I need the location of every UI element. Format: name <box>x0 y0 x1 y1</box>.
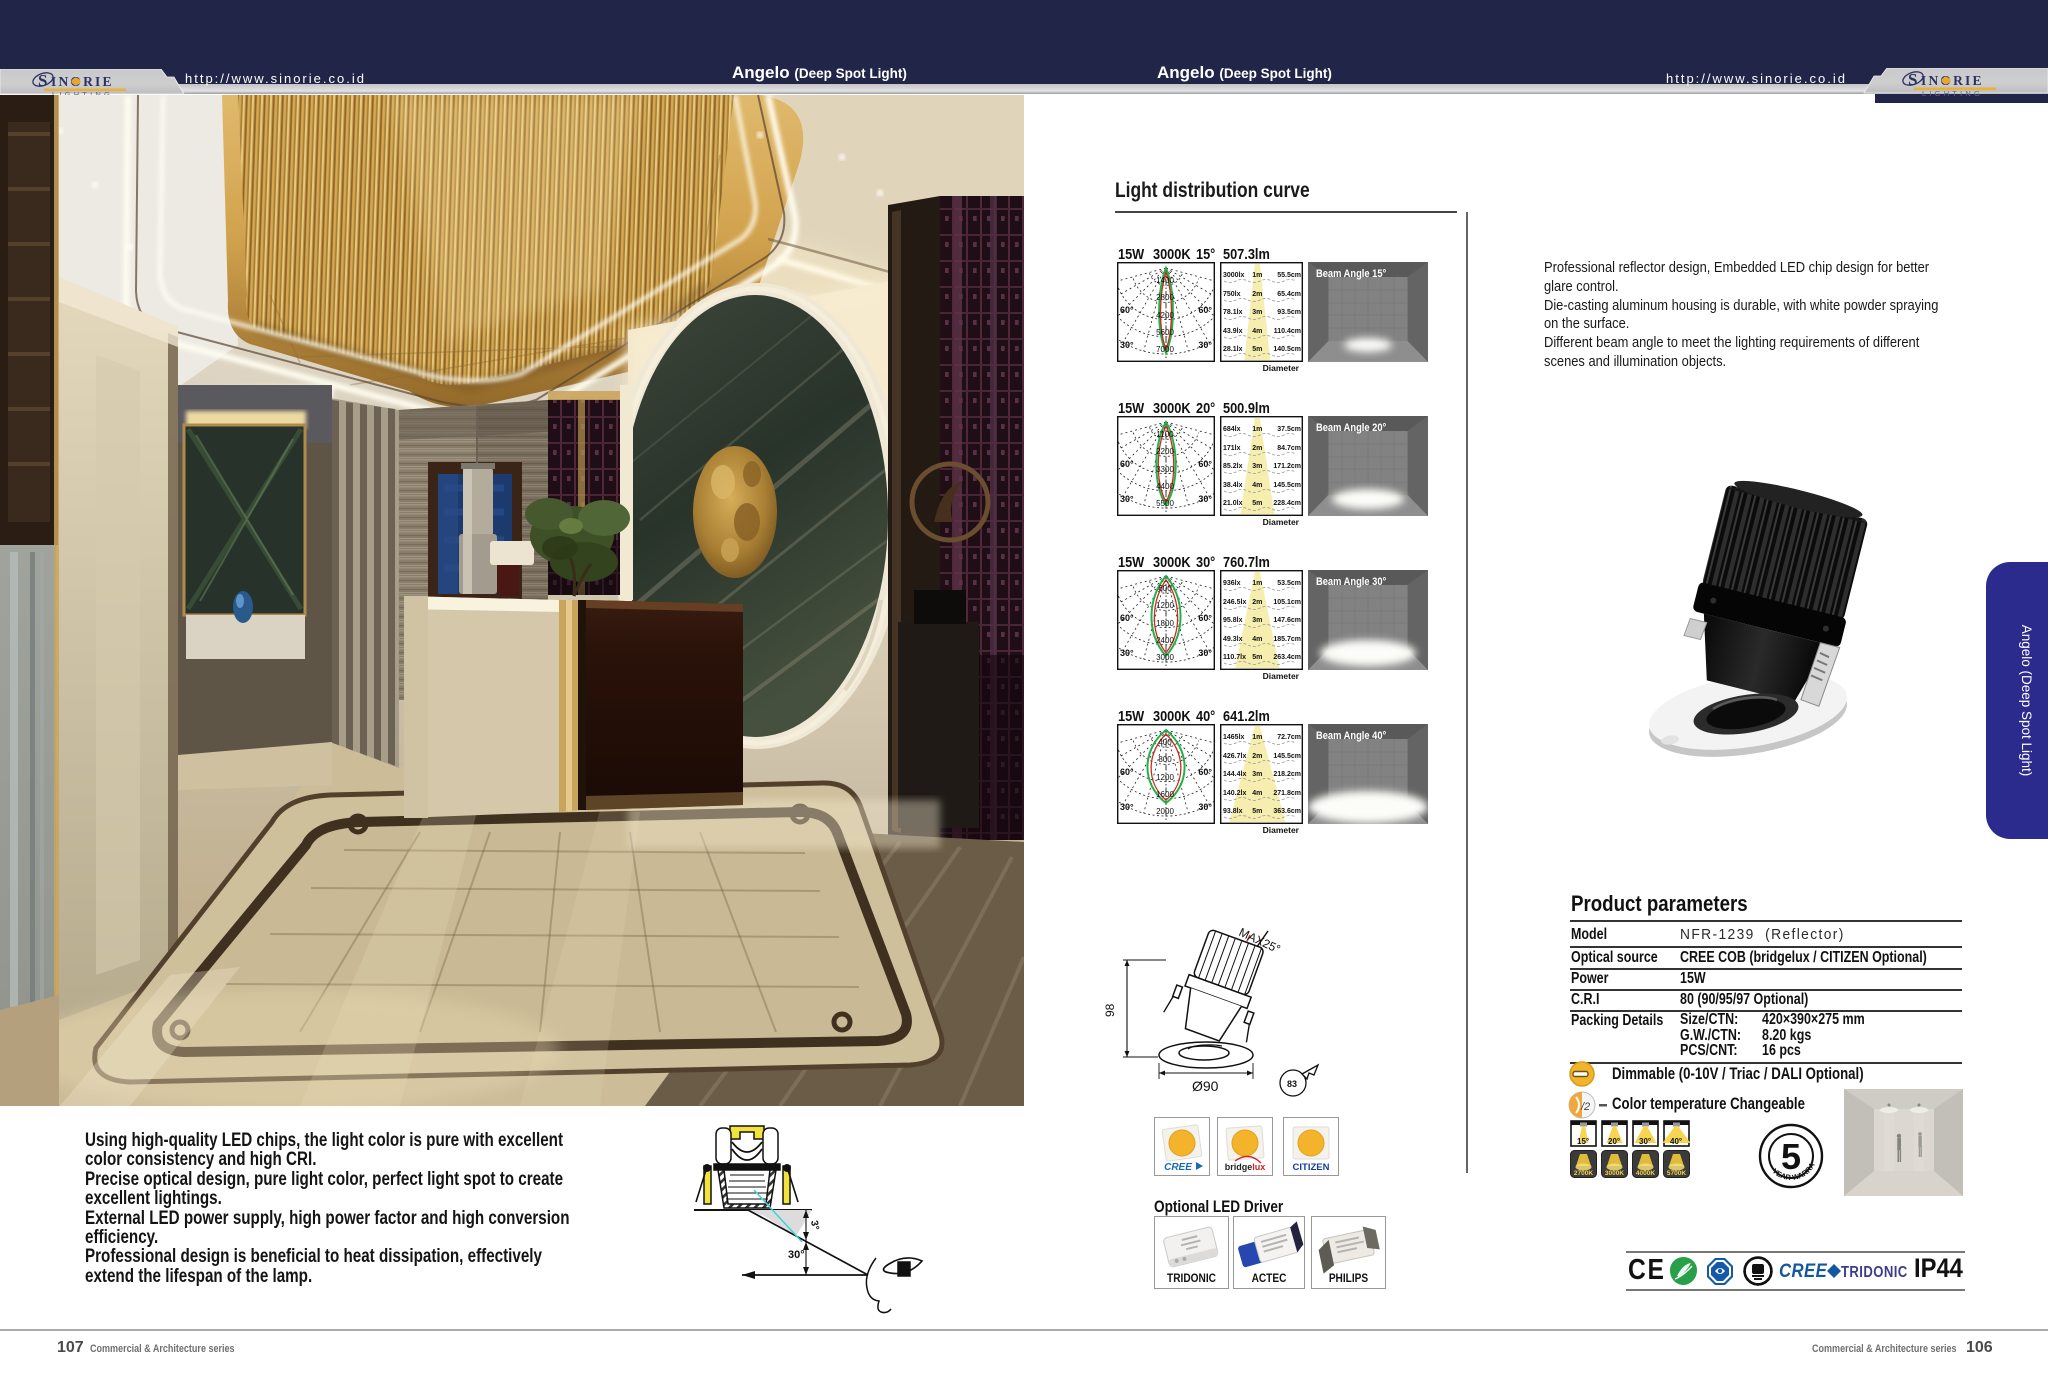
svg-text:30°: 30° <box>1120 802 1134 812</box>
svg-text:CITIZEN: CITIZEN <box>1293 1162 1330 1173</box>
svg-text:15°: 15° <box>1577 1137 1589 1146</box>
svg-text:3000K: 3000K <box>1605 1170 1624 1177</box>
svg-text:4400: 4400 <box>1156 482 1174 491</box>
svg-text:1m: 1m <box>1252 734 1262 741</box>
svg-text:bridgelux: bridgelux <box>1225 1162 1266 1172</box>
svg-text:30°: 30° <box>1120 340 1134 350</box>
svg-text:4m: 4m <box>1252 328 1262 335</box>
svg-text:4m: 4m <box>1252 482 1262 489</box>
svg-text:55.5cm: 55.5cm <box>1277 272 1301 279</box>
svg-text:ACTEC: ACTEC <box>1252 1272 1287 1285</box>
svg-text:145.5cm: 145.5cm <box>1273 753 1301 760</box>
svg-text:38.4lx: 38.4lx <box>1223 482 1243 489</box>
svg-text:30°: 30° <box>1120 648 1134 658</box>
svg-text:2m: 2m <box>1252 599 1262 606</box>
svg-text:140.5cm: 140.5cm <box>1273 346 1301 353</box>
svg-text:78.1lx: 78.1lx <box>1223 309 1243 316</box>
svg-text:2700K: 2700K <box>1574 1170 1593 1177</box>
svg-text:60°: 60° <box>1120 613 1134 623</box>
svg-text:5: 5 <box>1781 1136 1801 1177</box>
svg-text:60°: 60° <box>1198 767 1212 777</box>
svg-text:426.7lx: 426.7lx <box>1223 753 1246 760</box>
svg-text:30°: 30° <box>1120 494 1134 504</box>
svg-text:1m: 1m <box>1252 580 1262 587</box>
svg-text:684lx: 684lx <box>1223 426 1241 433</box>
svg-text:1m: 1m <box>1252 426 1262 433</box>
svg-text:65.4cm: 65.4cm <box>1277 291 1301 298</box>
svg-text:5500: 5500 <box>1156 499 1174 508</box>
svg-text:1465lx: 1465lx <box>1223 734 1245 741</box>
svg-text:185.7cm: 185.7cm <box>1273 636 1301 643</box>
svg-text:218.2cm: 218.2cm <box>1273 771 1301 778</box>
svg-text:43.9lx: 43.9lx <box>1223 328 1243 335</box>
svg-text:750lx: 750lx <box>1223 291 1241 298</box>
svg-text:3m: 3m <box>1252 771 1262 778</box>
svg-text:1400: 1400 <box>1156 276 1174 285</box>
svg-text:2m: 2m <box>1252 753 1262 760</box>
svg-text:2800: 2800 <box>1156 293 1174 302</box>
svg-text:3000: 3000 <box>1156 653 1174 662</box>
svg-text:37.5cm: 37.5cm <box>1277 426 1301 433</box>
svg-text:105.1cm: 105.1cm <box>1273 599 1301 606</box>
svg-text:110.7lx: 110.7lx <box>1223 654 1246 661</box>
svg-text:Ø90: Ø90 <box>1192 1078 1219 1094</box>
svg-text:60°: 60° <box>1120 459 1134 469</box>
svg-text:2200: 2200 <box>1156 447 1174 456</box>
svg-text:4200: 4200 <box>1156 311 1174 320</box>
svg-text:93.5cm: 93.5cm <box>1277 309 1301 316</box>
svg-text:30°: 30° <box>1198 802 1212 812</box>
svg-text:40°: 40° <box>1670 1137 1682 1146</box>
svg-text:5m: 5m <box>1252 654 1262 661</box>
svg-text:60°: 60° <box>1198 305 1212 315</box>
svg-text:30°: 30° <box>1198 340 1212 350</box>
svg-text:28.1lx: 28.1lx <box>1223 346 1243 353</box>
svg-text:363.6cm: 363.6cm <box>1273 808 1301 815</box>
svg-text:21.0lx: 21.0lx <box>1223 500 1243 507</box>
svg-text:400: 400 <box>1158 738 1172 747</box>
svg-text:145.5cm: 145.5cm <box>1273 482 1301 489</box>
svg-text:1100: 1100 <box>1156 430 1174 439</box>
svg-text:1800: 1800 <box>1156 619 1174 628</box>
svg-text:4000K: 4000K <box>1636 1170 1655 1177</box>
svg-text:7000: 7000 <box>1156 345 1174 354</box>
svg-text:85.2lx: 85.2lx <box>1223 463 1243 470</box>
svg-text:144.4lx: 144.4lx <box>1223 771 1246 778</box>
svg-text:60°: 60° <box>1120 767 1134 777</box>
svg-text:Diameter: Diameter <box>1263 671 1300 681</box>
svg-text:1200: 1200 <box>1156 601 1174 610</box>
svg-text:4m: 4m <box>1252 790 1262 797</box>
svg-text:2000: 2000 <box>1156 807 1174 816</box>
svg-text:1m: 1m <box>1252 272 1262 279</box>
svg-text:Diameter: Diameter <box>1263 517 1300 527</box>
svg-text:3000lx: 3000lx <box>1223 272 1245 279</box>
svg-text:Beam Angle 30°: Beam Angle 30° <box>1316 576 1386 588</box>
svg-text:2400: 2400 <box>1156 636 1174 645</box>
svg-text:72.7cm: 72.7cm <box>1277 734 1301 741</box>
svg-text:83: 83 <box>1287 1079 1297 1089</box>
svg-text:5m: 5m <box>1252 500 1262 507</box>
svg-text:20°: 20° <box>1608 1137 1620 1146</box>
svg-text:936lx: 936lx <box>1223 580 1241 587</box>
svg-text:LIGHTING: LIGHTING <box>1922 89 1983 98</box>
svg-text:171lx: 171lx <box>1223 445 1241 452</box>
svg-text:5600: 5600 <box>1156 328 1174 337</box>
svg-text:5m: 5m <box>1252 346 1262 353</box>
svg-text:5700K: 5700K <box>1667 1170 1686 1177</box>
svg-text:3m: 3m <box>1252 463 1262 470</box>
svg-text:Diameter: Diameter <box>1263 825 1300 835</box>
svg-text:60°: 60° <box>1198 613 1212 623</box>
svg-text:147.6cm: 147.6cm <box>1273 617 1301 624</box>
svg-text:110.4cm: 110.4cm <box>1274 328 1301 335</box>
svg-text:30°: 30° <box>1198 494 1212 504</box>
svg-text:Beam Angle 20°: Beam Angle 20° <box>1316 422 1386 434</box>
svg-text:53.5cm: 53.5cm <box>1277 580 1301 587</box>
svg-text:TRIDONIC: TRIDONIC <box>1167 1272 1216 1285</box>
svg-text:800: 800 <box>1158 755 1172 764</box>
svg-text:93.8lx: 93.8lx <box>1223 808 1243 815</box>
svg-text:60°: 60° <box>1198 459 1212 469</box>
svg-text:49.3lx: 49.3lx <box>1223 636 1243 643</box>
svg-text:246.5lx: 246.5lx <box>1223 599 1246 606</box>
svg-text:3°: 3° <box>808 1220 820 1231</box>
svg-text:171.2cm: 171.2cm <box>1273 463 1301 470</box>
svg-text:600: 600 <box>1158 584 1172 593</box>
svg-text:3300: 3300 <box>1156 465 1174 474</box>
svg-text:84.7cm: 84.7cm <box>1277 445 1301 452</box>
svg-text:30°: 30° <box>1198 648 1212 658</box>
svg-text:INORIE: INORIE <box>1921 73 1984 88</box>
svg-text:263.4cm: 263.4cm <box>1273 654 1301 661</box>
svg-text:4m: 4m <box>1252 636 1262 643</box>
svg-text:5m: 5m <box>1252 808 1262 815</box>
svg-text:271.8cm: 271.8cm <box>1273 790 1301 797</box>
svg-text:INORIE: INORIE <box>51 74 114 89</box>
svg-text:98: 98 <box>1103 1003 1117 1017</box>
svg-text:Diameter: Diameter <box>1263 363 1300 373</box>
svg-text:Angelo (Deep Spot Light): Angelo (Deep Spot Light) <box>2019 625 2034 777</box>
svg-text:Beam Angle 40°: Beam Angle 40° <box>1316 730 1386 742</box>
svg-text:3m: 3m <box>1252 309 1262 316</box>
svg-text:1600: 1600 <box>1156 790 1174 799</box>
svg-text:30°: 30° <box>788 1249 805 1261</box>
svg-text:140.2lx: 140.2lx <box>1223 790 1246 797</box>
svg-text:2m: 2m <box>1252 445 1262 452</box>
svg-text:Beam Angle 15°: Beam Angle 15° <box>1316 268 1386 280</box>
svg-text:PHILIPS: PHILIPS <box>1329 1272 1368 1285</box>
svg-text:/2: /2 <box>1580 1101 1590 1113</box>
svg-text:228.4cm: 228.4cm <box>1273 500 1301 507</box>
svg-text:95.8lx: 95.8lx <box>1223 617 1243 624</box>
svg-text:CREE: CREE <box>1164 1162 1192 1173</box>
svg-text:60°: 60° <box>1120 305 1134 315</box>
svg-text:3m: 3m <box>1252 617 1262 624</box>
svg-text:1200: 1200 <box>1156 773 1174 782</box>
svg-text:2m: 2m <box>1252 291 1262 298</box>
svg-text:30°: 30° <box>1639 1137 1651 1146</box>
